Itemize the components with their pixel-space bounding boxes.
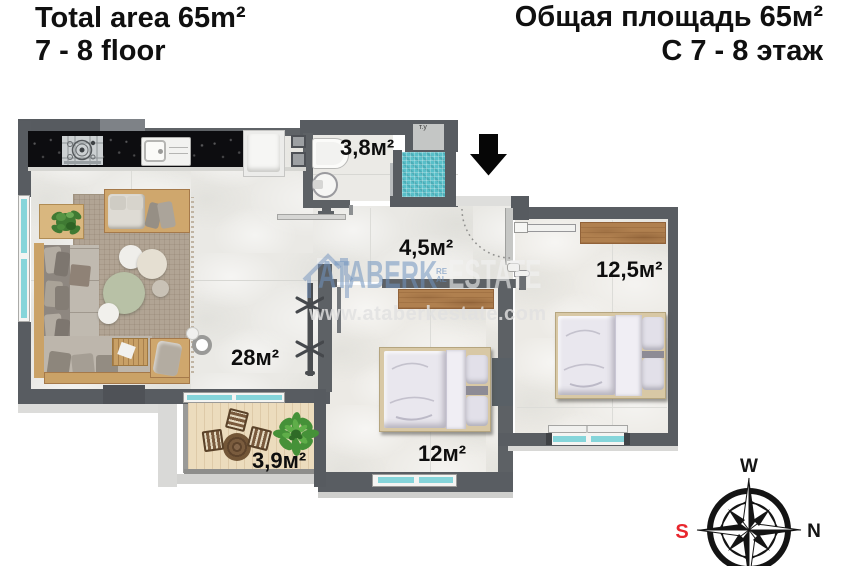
svg-text:S: S bbox=[675, 521, 688, 543]
svg-text:N: N bbox=[807, 521, 821, 542]
svg-text:W: W bbox=[740, 456, 758, 477]
